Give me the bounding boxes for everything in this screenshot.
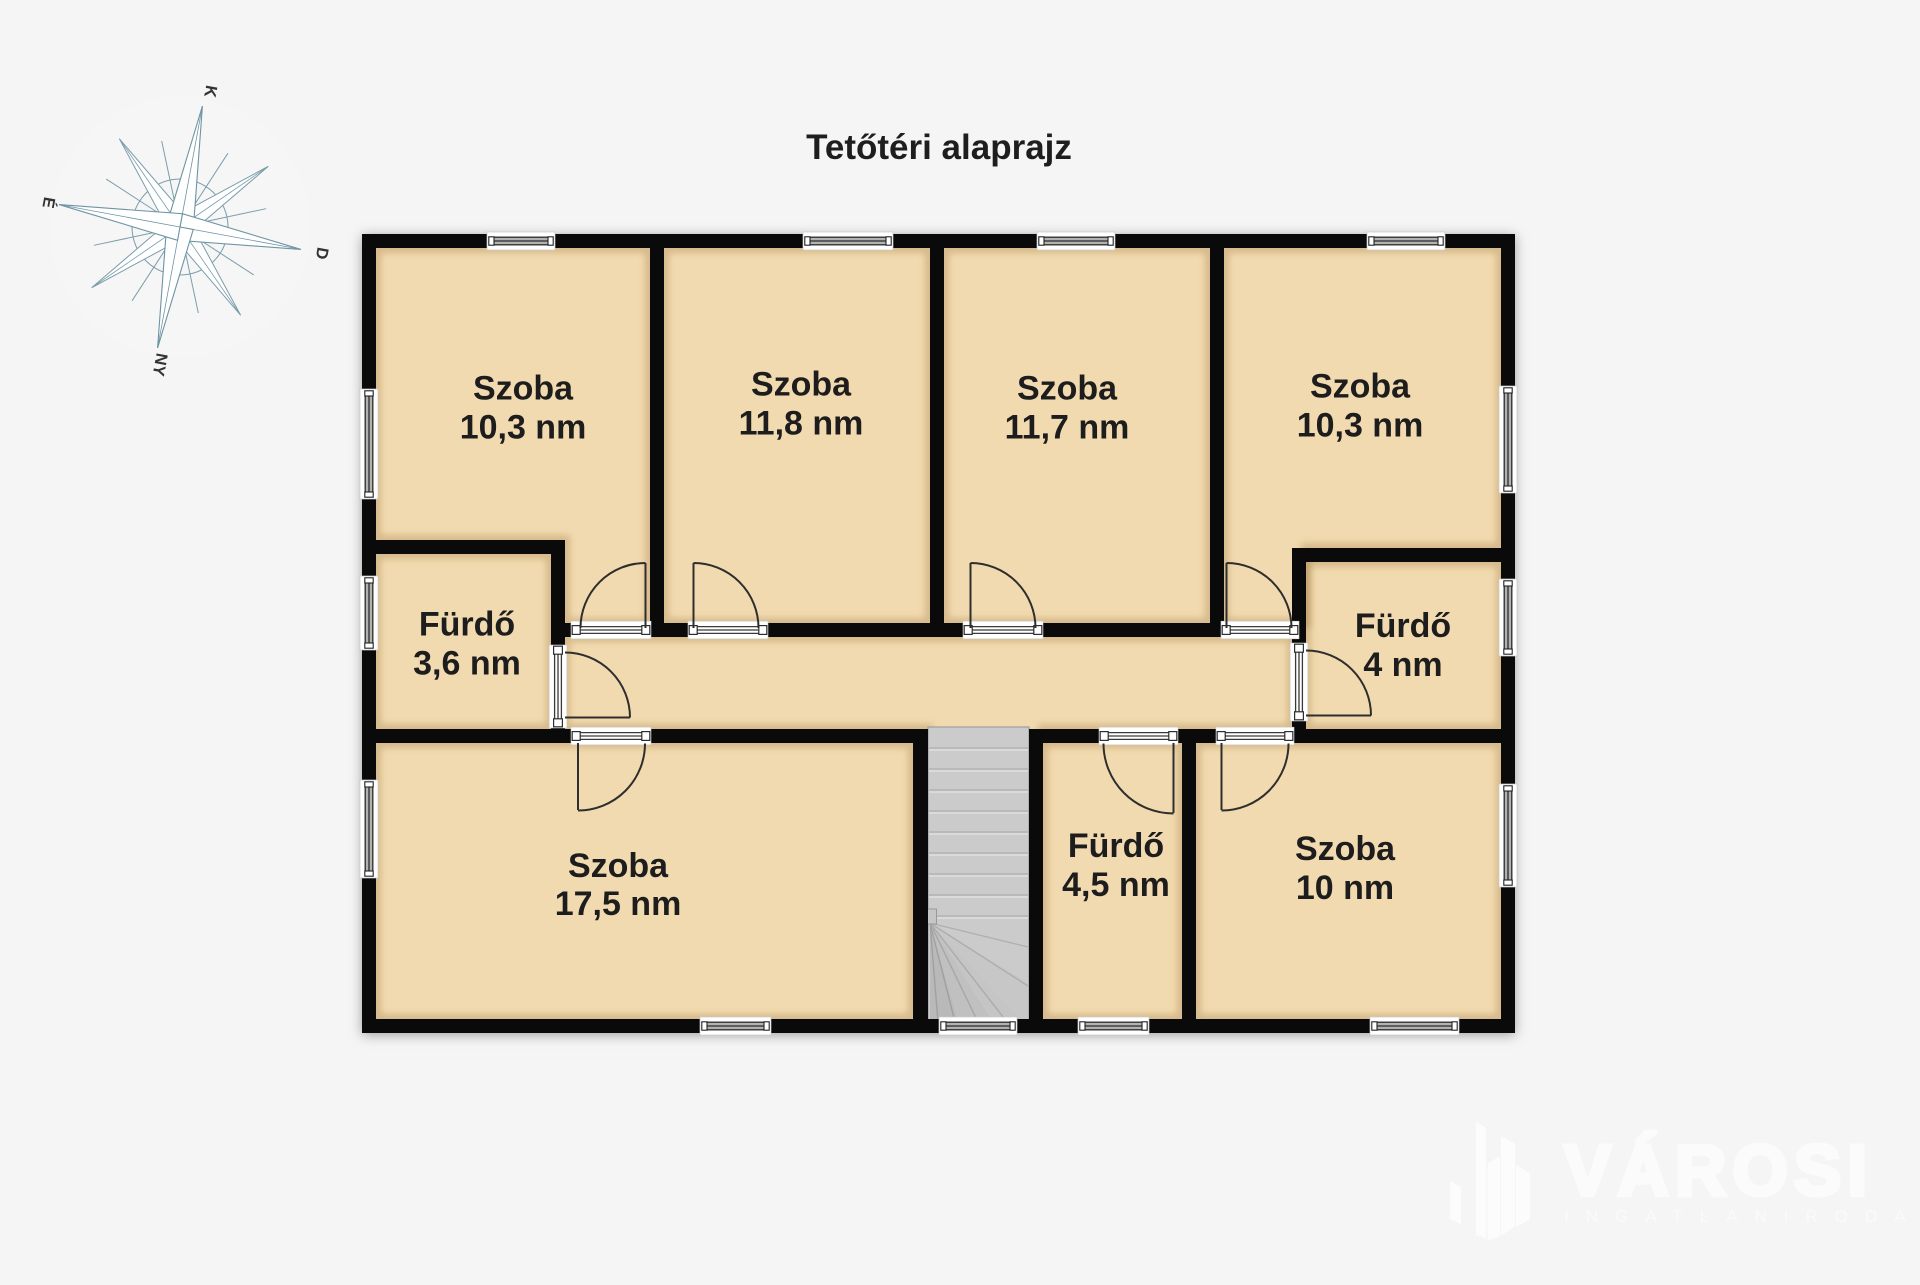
svg-text:Fürdő: Fürdő: [1068, 827, 1164, 865]
svg-text:11,8 nm: 11,8 nm: [739, 405, 864, 443]
svg-text:Szoba: Szoba: [1295, 830, 1396, 868]
svg-text:10,3 nm: 10,3 nm: [460, 409, 587, 447]
svg-text:4 nm: 4 nm: [1363, 646, 1442, 684]
svg-text:10,3 nm: 10,3 nm: [1297, 407, 1424, 445]
svg-text:Szoba: Szoba: [1310, 368, 1411, 406]
svg-text:Szoba: Szoba: [1017, 370, 1118, 408]
svg-text:Szoba: Szoba: [568, 847, 669, 885]
svg-text:11,7 nm: 11,7 nm: [1005, 409, 1130, 447]
svg-text:Tetőtéri alaprajz: Tetőtéri alaprajz: [806, 128, 1072, 167]
svg-text:Fürdő: Fürdő: [1355, 607, 1451, 645]
svg-text:10 nm: 10 nm: [1296, 869, 1394, 907]
svg-text:Fürdő: Fürdő: [419, 606, 515, 644]
svg-text:17,5 nm: 17,5 nm: [555, 885, 682, 923]
svg-text:VÁROSI: VÁROSI: [1564, 1132, 1873, 1211]
svg-text:Szoba: Szoba: [473, 370, 574, 408]
svg-text:INGATLANIRODA: INGATLANIRODA: [1564, 1207, 1920, 1226]
svg-text:Szoba: Szoba: [751, 366, 852, 404]
svg-text:3,6 nm: 3,6 nm: [413, 645, 521, 683]
svg-text:4,5 nm: 4,5 nm: [1062, 866, 1170, 904]
